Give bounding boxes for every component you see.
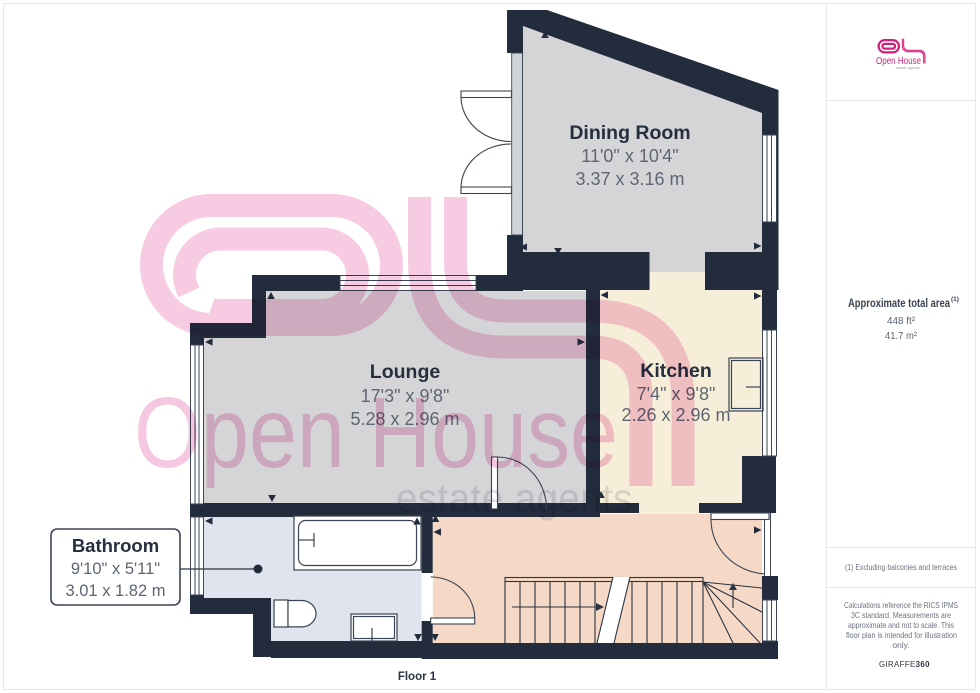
svg-text:GIRAFFE360: GIRAFFE360: [879, 660, 930, 669]
svg-text:3.01 x 1.82 m: 3.01 x 1.82 m: [66, 582, 166, 600]
svg-text:only.: only.: [892, 640, 909, 650]
svg-text:(1) Excluding balconies and te: (1) Excluding balconies and terraces: [845, 562, 957, 572]
svg-text:Open House: Open House: [134, 377, 618, 489]
svg-text:3C standard. Measurements are: 3C standard. Measurements are: [851, 610, 951, 620]
svg-text:Floor 1: Floor 1: [398, 671, 437, 683]
svg-text:(1): (1): [951, 296, 959, 303]
svg-text:floor plan is intended for ill: floor plan is intended for illustration: [846, 630, 957, 640]
svg-text:3.37 x 3.16 m: 3.37 x 3.16 m: [575, 169, 684, 189]
svg-text:448 ft²: 448 ft²: [887, 316, 916, 327]
svg-text:estate agents: estate agents: [396, 475, 633, 521]
svg-text:Calculations reference the RIC: Calculations reference the RICS IPMS: [844, 600, 958, 610]
svg-text:11'0" x 10'4": 11'0" x 10'4": [581, 146, 678, 166]
svg-text:approximate and not to scale.: approximate and not to scale. This: [848, 620, 954, 630]
svg-text:Bathroom: Bathroom: [72, 535, 159, 556]
svg-text:Approximate total area: Approximate total area: [848, 298, 950, 310]
svg-text:41.7 m²: 41.7 m²: [885, 331, 918, 342]
svg-text:9'10" x 5'11": 9'10" x 5'11": [71, 560, 160, 578]
svg-text:Dining Room: Dining Room: [569, 122, 690, 144]
svg-text:estate agents: estate agents: [896, 65, 920, 70]
